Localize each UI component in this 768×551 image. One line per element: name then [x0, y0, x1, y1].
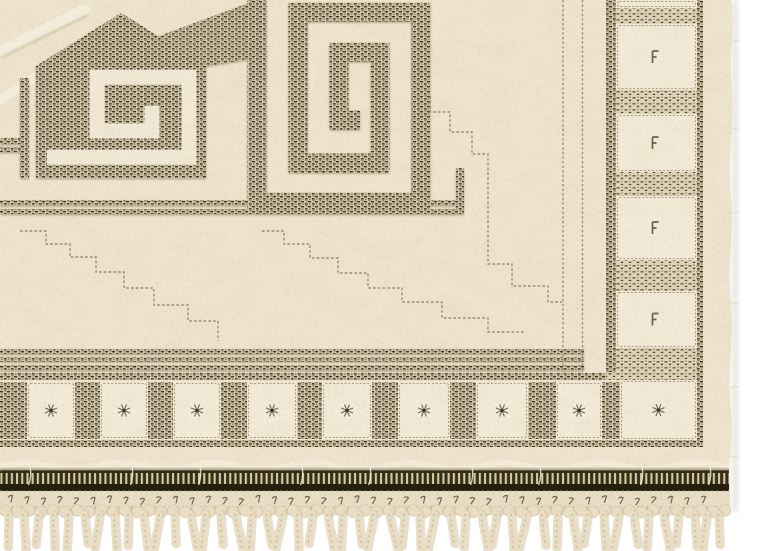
tassel — [35, 514, 38, 545]
tassel — [308, 514, 312, 544]
rug-photo — [0, 0, 768, 551]
wool-texture-soft — [0, 0, 733, 515]
tassel — [358, 514, 361, 545]
rug-edge-shadow — [731, 0, 739, 512]
rug-body — [0, 0, 768, 515]
tassel — [174, 514, 175, 544]
tassel — [583, 514, 587, 544]
tassel — [675, 514, 678, 544]
tassel — [450, 514, 454, 544]
tassel — [633, 514, 637, 545]
rug-photo-canvas — [0, 0, 768, 551]
tassel — [220, 514, 222, 545]
tassel — [718, 514, 719, 545]
tassel — [84, 514, 87, 544]
